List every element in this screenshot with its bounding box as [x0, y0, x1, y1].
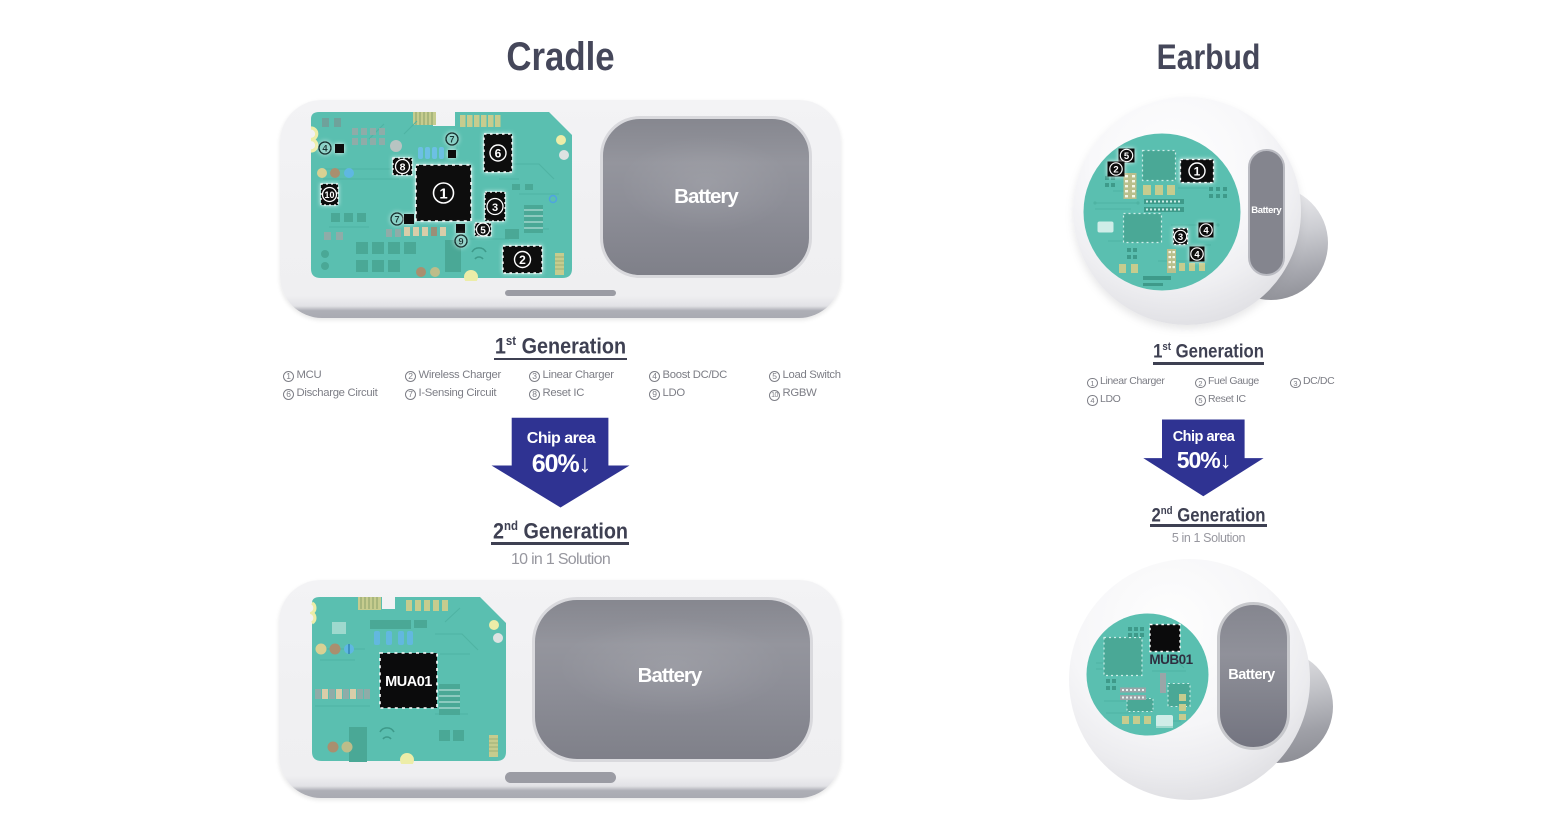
svg-text:7: 7: [394, 215, 399, 226]
svg-text:3: 3: [1178, 232, 1183, 243]
svg-text:7: 7: [449, 135, 454, 146]
svg-text:6: 6: [495, 147, 502, 161]
svg-text:2: 2: [1113, 165, 1118, 176]
svg-text:5: 5: [480, 226, 486, 237]
svg-text:1: 1: [439, 186, 447, 203]
svg-text:5: 5: [1124, 151, 1130, 162]
svg-text:2: 2: [519, 253, 526, 267]
svg-text:4: 4: [1194, 250, 1200, 261]
svg-text:1: 1: [1194, 165, 1201, 179]
svg-text:3: 3: [492, 202, 498, 214]
svg-text:MUB01: MUB01: [1149, 652, 1193, 667]
svg-text:9: 9: [458, 237, 463, 248]
svg-text:10: 10: [324, 190, 334, 200]
svg-text:4: 4: [322, 144, 328, 155]
svg-text:MUA01: MUA01: [385, 674, 432, 690]
svg-text:8: 8: [400, 162, 406, 174]
svg-text:4: 4: [1203, 226, 1209, 237]
